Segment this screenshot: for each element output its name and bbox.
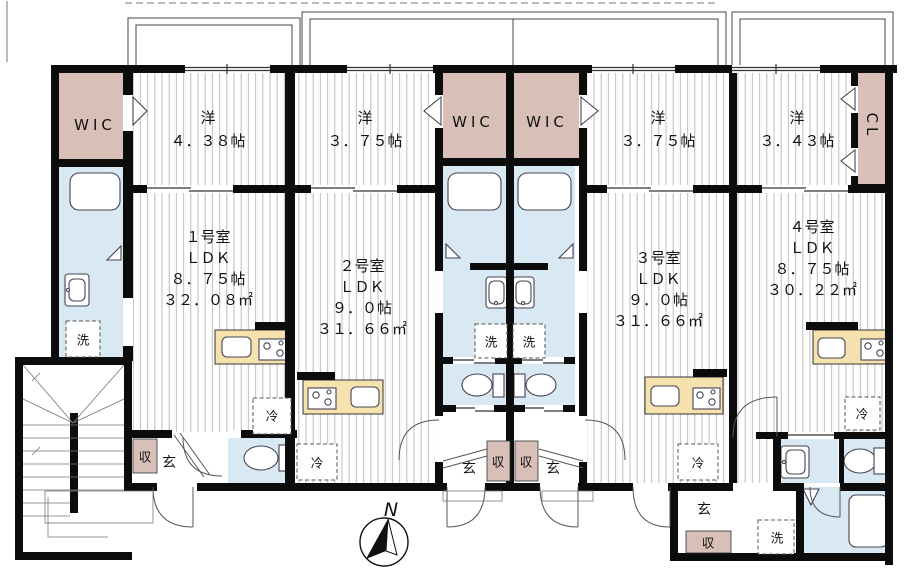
bathtub-1	[70, 173, 120, 210]
svg-text:４号室: ４号室	[789, 218, 834, 236]
svg-text:ＬＤＫ: ＬＤＫ	[635, 270, 680, 288]
svg-text:９．０帖: ９．０帖	[332, 299, 392, 317]
kitchen-2	[303, 380, 383, 414]
bathtub-3	[518, 173, 571, 210]
toilet-2	[462, 374, 504, 397]
entrance-label-3: 玄	[546, 460, 560, 477]
fridge-label-3: 冷	[692, 456, 705, 471]
svg-text:ＬＤＫ: ＬＤＫ	[185, 249, 230, 267]
svg-text:洋: 洋	[357, 109, 372, 127]
wic-label-2: WIC	[452, 113, 494, 131]
ldk-2-floor	[295, 193, 435, 483]
svg-text:３．４３帖: ３．４３帖	[759, 132, 834, 150]
fridge-label-1: 冷	[266, 409, 279, 424]
svg-text:１号室: １号室	[185, 228, 230, 246]
svg-text:３１．６６㎡: ３１．６６㎡	[613, 312, 703, 330]
wic-label-1: WIC	[74, 116, 116, 134]
storage-label-1: 収	[139, 450, 152, 465]
floor-plan: WIC WIC WIC CL 洋 ４．３８帖 洋 ３．７５帖 洋 ３．７５帖 洋…	[0, 0, 919, 583]
svg-text:洋: 洋	[789, 109, 804, 127]
svg-text:８．７５帖: ８．７５帖	[774, 260, 849, 278]
svg-text:洋: 洋	[650, 109, 665, 127]
storage-label-3: 収	[520, 455, 533, 470]
storage-label-2: 収	[492, 455, 505, 470]
wash-label-2: 洗	[485, 335, 498, 350]
bedroom-1-floor	[133, 73, 285, 185]
svg-text:３号室: ３号室	[635, 249, 680, 267]
svg-text:洋: 洋	[200, 109, 215, 127]
kitchen-3	[645, 377, 723, 414]
toilet-3	[514, 374, 556, 397]
floor-plan-page: WIC WIC WIC CL 洋 ４．３８帖 洋 ３．７５帖 洋 ３．７５帖 洋…	[0, 0, 919, 583]
wash-label-4: 洗	[771, 531, 784, 546]
svg-text:ＬＤＫ: ＬＤＫ	[789, 239, 834, 257]
entrance-label-2: 玄	[462, 460, 476, 477]
svg-text:２号室: ２号室	[339, 257, 384, 275]
svg-text:ＬＤＫ: ＬＤＫ	[339, 278, 384, 296]
cl-label: CL	[863, 113, 881, 140]
bedroom-2-floor	[295, 73, 435, 185]
wash-label-3: 洗	[523, 335, 536, 350]
svg-text:３．７５帖: ３．７５帖	[327, 132, 402, 150]
svg-text:９．０帖: ９．０帖	[628, 291, 688, 309]
svg-text:３１．６６㎡: ３１．６６㎡	[317, 320, 407, 338]
svg-text:３２．０８㎡: ３２．０８㎡	[163, 291, 253, 309]
bathtub-4	[849, 495, 888, 547]
storage-label-4: 収	[702, 536, 715, 551]
svg-text:３０．２２㎡: ３０．２２㎡	[767, 281, 857, 299]
svg-text:３．７５帖: ３．７５帖	[620, 132, 695, 150]
svg-text:４．３８帖: ４．３８帖	[170, 132, 245, 150]
wic-label-3: WIC	[526, 113, 568, 131]
bathtub-2	[448, 173, 501, 210]
kitchen-1	[215, 330, 293, 364]
entrance-label-1: 玄	[162, 454, 176, 471]
kitchen-4	[813, 330, 890, 364]
ldk-3-floor	[587, 193, 729, 483]
wash-label-1: 洗	[77, 333, 90, 348]
svg-text:８．７５帖: ８．７５帖	[170, 270, 245, 288]
fridge-label-2: 冷	[311, 456, 324, 471]
entrance-label-4: 玄	[697, 501, 711, 518]
fridge-label-4: 冷	[856, 407, 869, 422]
toilet-4	[844, 448, 886, 474]
bedroom-4-floor	[737, 73, 853, 185]
toilet-1	[244, 445, 290, 471]
bedroom-3-floor	[587, 73, 729, 185]
